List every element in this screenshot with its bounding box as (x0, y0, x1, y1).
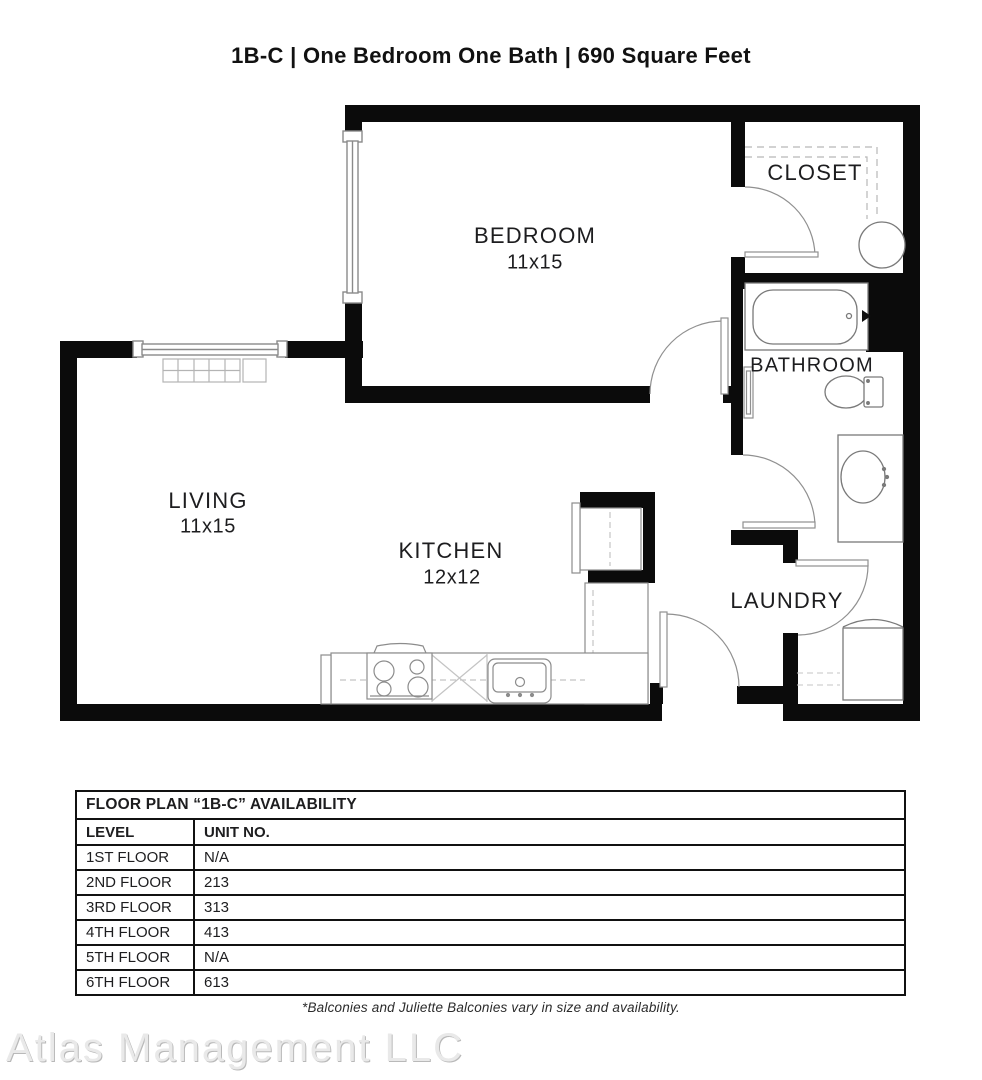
entry-door (660, 612, 739, 687)
floor-plan-sheet: 1B-C | One Bedroom One Bath | 690 Square… (0, 0, 982, 1080)
laundry-counter-dashes (797, 673, 840, 685)
bedroom-window (343, 131, 362, 303)
table-row: 6TH FLOOR 613 (76, 970, 905, 995)
kitchen-fixtures (321, 503, 648, 704)
bedroom-label: BEDROOM (474, 223, 596, 249)
level-cell: 5TH FLOOR (76, 945, 194, 970)
baseboard-heater (163, 359, 266, 382)
table-title: FLOOR PLAN “1B-C” AVAILABILITY (76, 791, 905, 819)
walls (60, 105, 920, 721)
water-heater (859, 222, 905, 268)
balcony-footnote: *Balconies and Juliette Balconies vary i… (0, 1000, 982, 1015)
wall-living-top-right (285, 341, 363, 358)
wall-bottom-main (60, 704, 662, 721)
watermark: Atlas Management LLC (6, 1026, 464, 1071)
bedroom-dimensions: 11x15 (507, 252, 563, 275)
stove (367, 644, 432, 700)
kitchen-sink (488, 659, 551, 703)
unit-cell: 213 (194, 870, 905, 895)
level-cell: 2ND FLOOR (76, 870, 194, 895)
kitchen-label: KITCHEN (399, 538, 504, 564)
unit-cell: 613 (194, 970, 905, 995)
wall-laundry-bottom (783, 704, 920, 721)
living-dimensions: 11x15 (180, 516, 236, 539)
table-row: 3RD FLOOR 313 (76, 895, 905, 920)
toilet (825, 376, 883, 408)
table-title-row: FLOOR PLAN “1B-C” AVAILABILITY (76, 791, 905, 819)
windows (133, 131, 362, 357)
wall-laundry-top-stub (783, 530, 798, 563)
bathroom-label: BATHROOM (750, 355, 874, 378)
unit-cell: 313 (194, 895, 905, 920)
bedroom-door (650, 318, 728, 394)
level-cell: 6TH FLOOR (76, 970, 194, 995)
living-window (133, 341, 287, 357)
table-row: 5TH FLOOR N/A (76, 945, 905, 970)
unit-cell: N/A (194, 945, 905, 970)
closet-door (745, 187, 818, 257)
level-cell: 3RD FLOOR (76, 895, 194, 920)
vanity-sink (838, 435, 903, 542)
kitchen-dimensions: 12x12 (423, 567, 481, 590)
closet-label: CLOSET (767, 160, 862, 186)
level-cell: 4TH FLOOR (76, 920, 194, 945)
bathroom-door (743, 455, 815, 528)
wall-top (345, 105, 920, 122)
laundry-label: LAUNDRY (730, 588, 843, 614)
availability-table: FLOOR PLAN “1B-C” AVAILABILITY LEVEL UNI… (75, 790, 906, 996)
wall-hall-bottom (737, 686, 798, 704)
laundry-fixtures (797, 620, 903, 701)
washer (843, 620, 903, 701)
wall-tub-right-block (866, 280, 903, 352)
table-row: 2ND FLOOR 213 (76, 870, 905, 895)
wall-right (903, 105, 920, 721)
wall-closet-left (731, 105, 745, 187)
living-label: LIVING (168, 488, 247, 514)
bathtub (745, 283, 871, 350)
wall-bedroom-left-stub (345, 105, 362, 133)
wall-fridge-nook-bottom (588, 570, 643, 583)
column-header-unit: UNIT NO. (194, 819, 905, 845)
unit-cell: 413 (194, 920, 905, 945)
table-row: 1ST FLOOR N/A (76, 845, 905, 870)
wall-bedroom-bottom (345, 386, 650, 403)
table-row: 4TH FLOOR 413 (76, 920, 905, 945)
wall-bathroom-left (731, 287, 743, 455)
refrigerator (572, 503, 641, 573)
wall-fridge-nook-right (643, 492, 655, 583)
column-header-level: LEVEL (76, 819, 194, 845)
wall-left (60, 341, 77, 721)
table-header-row: LEVEL UNIT NO. (76, 819, 905, 845)
level-cell: 1ST FLOOR (76, 845, 194, 870)
unit-cell: N/A (194, 845, 905, 870)
floor-plan-drawing (0, 0, 982, 770)
